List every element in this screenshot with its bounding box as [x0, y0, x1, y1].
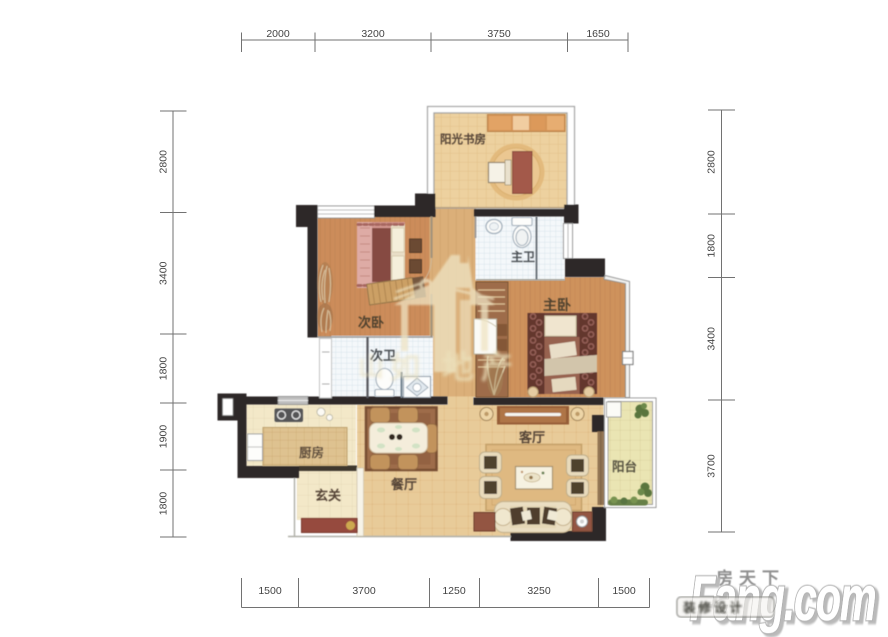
- svg-text:装修设计: 装修设计: [682, 600, 745, 615]
